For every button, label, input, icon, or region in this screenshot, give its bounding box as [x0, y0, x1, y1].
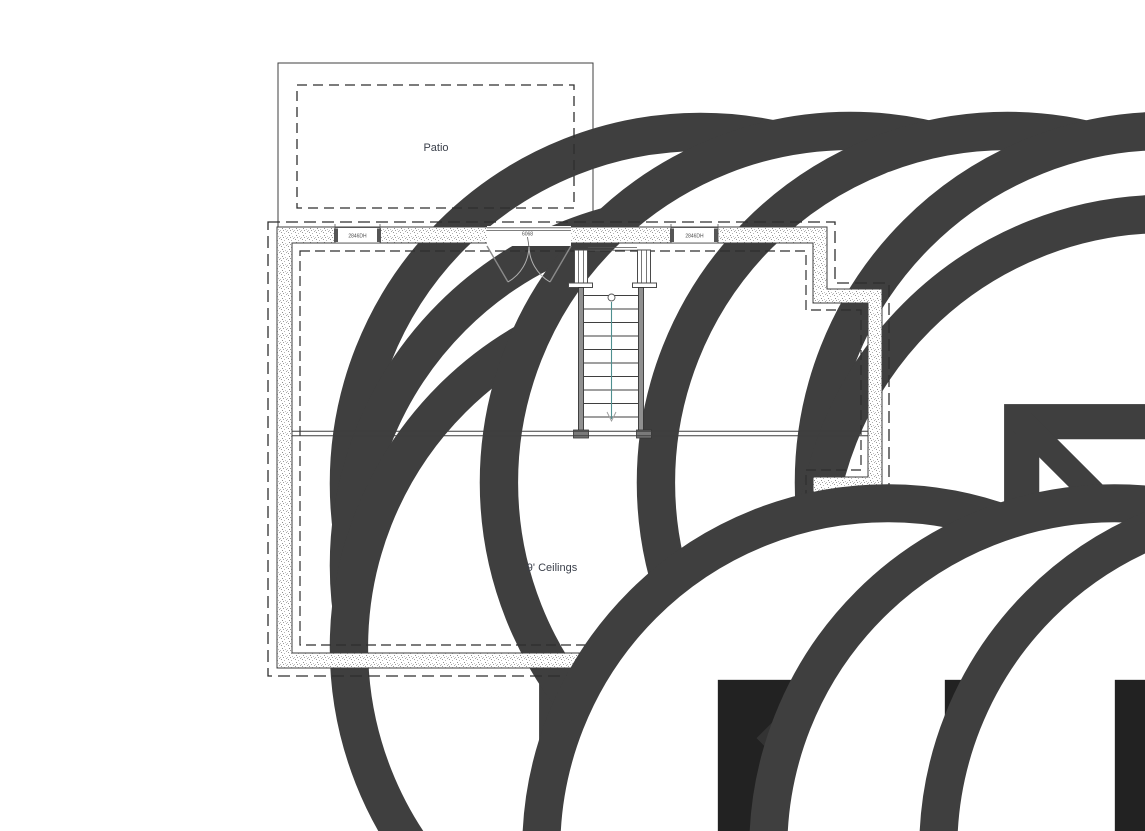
stair-direction-start-icon	[608, 294, 615, 301]
floor-plan-canvas: Patio 2846DH 6068 2846	[0, 0, 1145, 831]
door-size-label: 6068	[522, 232, 533, 238]
stair-wall-cap	[569, 283, 593, 288]
window-jamb	[714, 229, 718, 243]
stair-jamb	[638, 250, 651, 283]
patio-label: Patio	[423, 142, 448, 154]
stair-wall-cap	[633, 283, 657, 288]
stair-wall	[579, 288, 584, 432]
window-jamb	[670, 229, 674, 243]
window-jamb	[377, 229, 381, 243]
window-size-label: 2846DH	[348, 234, 367, 240]
ceiling-height-label: 9' Ceilings	[527, 562, 578, 574]
window-size-label: 2846DH	[685, 234, 704, 240]
stair-wall	[639, 288, 644, 432]
window-jamb	[334, 229, 338, 243]
stair-jamb	[575, 250, 588, 283]
document-page: Patio 2846DH 6068 2846	[0, 0, 1145, 831]
